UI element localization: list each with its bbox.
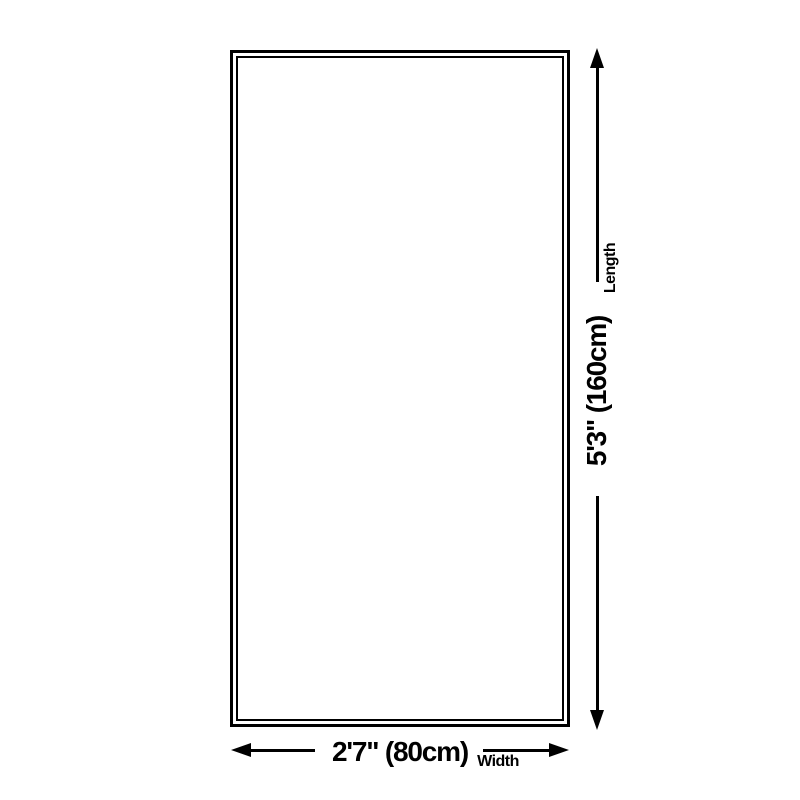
width-label: Width [477, 754, 519, 770]
rug-outline-inner [236, 56, 564, 721]
arrow-right-icon [549, 743, 569, 757]
width-arrow-shaft-right [483, 749, 549, 752]
length-value: 5'3" (160cm) [583, 316, 611, 466]
arrow-down-icon [590, 710, 604, 730]
rug-size-diagram: 5'3" (160cm) Length 2'7" (80cm) Width [0, 0, 800, 800]
length-arrow-shaft-upper [596, 66, 599, 282]
rug-outline [230, 50, 570, 727]
width-value: 2'7" (80cm) [332, 738, 468, 766]
length-label: Length [603, 243, 619, 293]
length-arrow-shaft-lower [596, 496, 599, 710]
arrow-left-icon [231, 743, 251, 757]
arrow-up-icon [590, 48, 604, 68]
width-arrow-shaft-left [251, 749, 315, 752]
